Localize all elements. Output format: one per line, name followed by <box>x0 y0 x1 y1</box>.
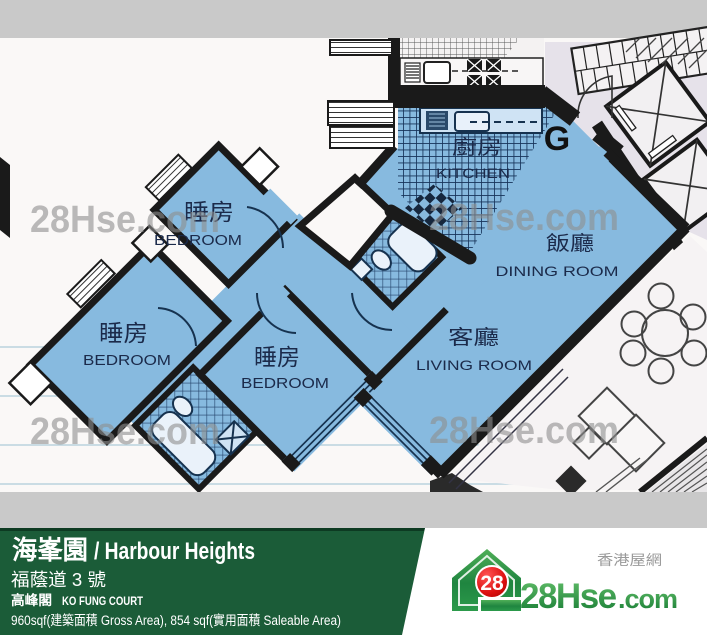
svg-text:BEDROOM: BEDROOM <box>241 376 329 392</box>
svg-text:福蔭道 3 號: 福蔭道 3 號 <box>11 570 106 590</box>
svg-text:28Hse.com: 28Hse.com <box>30 411 220 453</box>
svg-text:28Hse: 28Hse <box>520 577 617 616</box>
svg-text:高峰閣: 高峰閣 <box>11 592 52 608</box>
svg-text:960sqf(建築面積 Gross Area), 854 s: 960sqf(建築面積 Gross Area), 854 sqf(實用面積 Sa… <box>11 612 341 628</box>
svg-text:28Hse.com: 28Hse.com <box>429 197 619 239</box>
svg-text:廚房: 廚房 <box>452 135 502 159</box>
svg-text:香港屋網: 香港屋網 <box>597 552 662 568</box>
svg-text:KITCHEN: KITCHEN <box>436 165 510 181</box>
svg-text:客廳: 客廳 <box>448 326 499 349</box>
svg-text:LIVING ROOM: LIVING ROOM <box>416 357 532 373</box>
svg-text:睡房: 睡房 <box>99 320 148 346</box>
svg-text:海峯園: 海峯園 <box>12 535 88 565</box>
svg-text:DINING ROOM: DINING ROOM <box>496 263 619 279</box>
svg-text:28Hse.com: 28Hse.com <box>429 410 619 452</box>
svg-text:28: 28 <box>480 572 504 595</box>
svg-text:睡房: 睡房 <box>254 344 300 370</box>
svg-text:G: G <box>544 120 570 158</box>
svg-text:28Hse.com: 28Hse.com <box>30 199 220 241</box>
svg-text:KO FUNG COURT: KO FUNG COURT <box>62 594 144 608</box>
svg-text:.com: .com <box>618 584 677 614</box>
svg-text:/ Harbour Heights: / Harbour Heights <box>94 538 255 565</box>
svg-text:BEDROOM: BEDROOM <box>83 353 171 369</box>
